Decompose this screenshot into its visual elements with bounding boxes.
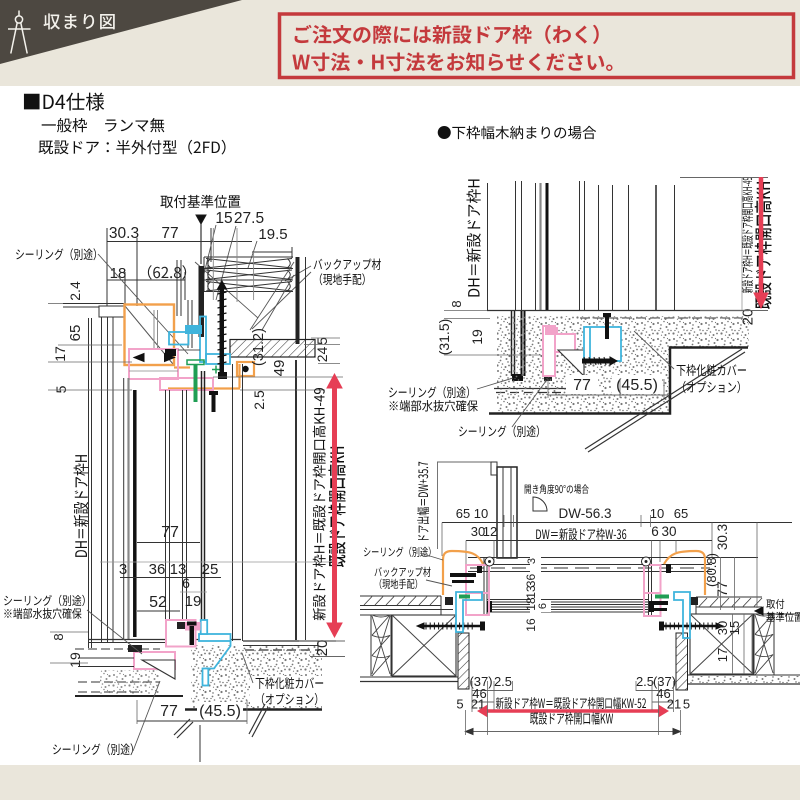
svg-text:(45.5): (45.5) [616,377,658,394]
svg-text:3: 3 [119,561,127,578]
svg-text:65: 65 [67,325,84,342]
svg-text:6: 6 [182,575,190,591]
svg-text:25: 25 [202,561,219,578]
svg-text:12: 12 [483,524,497,539]
svg-text:5: 5 [683,697,690,712]
svg-text:18: 18 [110,265,127,282]
svg-text:10: 10 [474,506,488,521]
svg-text:2.4: 2.4 [67,281,83,301]
svg-text:5: 5 [456,697,463,712]
svg-text:52: 52 [149,594,167,611]
svg-text:15: 15 [727,621,742,635]
svg-text:10: 10 [650,506,664,521]
svg-text:8: 8 [449,300,464,307]
svg-text:65: 65 [674,506,688,521]
svg-text:36: 36 [149,561,166,578]
svg-text:2.5: 2.5 [251,390,267,410]
svg-text:2.5: 2.5 [494,674,512,689]
svg-text:24: 24 [314,347,330,363]
svg-text:20: 20 [314,640,331,657]
svg-text:21: 21 [667,697,681,712]
svg-text:3: 3 [526,558,538,564]
svg-text:77: 77 [573,377,591,394]
svg-text:18: 18 [524,597,538,611]
svg-text:19: 19 [469,329,485,345]
svg-text:16: 16 [524,618,538,632]
svg-text:77: 77 [161,524,179,541]
svg-text:27.5: 27.5 [234,210,264,227]
svg-text:5: 5 [53,385,69,393]
svg-text:30: 30 [661,524,676,539]
svg-text:17: 17 [715,648,730,662]
svg-text:77: 77 [160,703,178,720]
svg-text:(31.5): (31.5) [436,319,452,356]
svg-text:77: 77 [714,581,730,597]
svg-text:30.3: 30.3 [715,524,730,550]
svg-text:13: 13 [524,585,538,599]
svg-text:6: 6 [651,524,659,539]
svg-text:19.5: 19.5 [258,226,287,243]
svg-text:49: 49 [271,360,288,377]
svg-text:36: 36 [524,574,538,588]
svg-text:8: 8 [51,633,66,640]
svg-text:19: 19 [67,652,83,668]
svg-text:65: 65 [456,506,470,521]
svg-text:17: 17 [52,346,68,362]
svg-text:77: 77 [161,225,178,242]
svg-text:2.5: 2.5 [636,674,654,689]
svg-text:15: 15 [215,210,232,227]
svg-text:20: 20 [740,309,757,326]
svg-text:(45.5): (45.5) [199,703,241,720]
svg-text:6: 6 [537,603,549,609]
svg-text:19: 19 [185,593,202,610]
svg-text:DW-56.3: DW-56.3 [558,506,611,521]
svg-text:30.3: 30.3 [109,225,139,242]
svg-text:(31.2): (31.2) [251,328,267,366]
